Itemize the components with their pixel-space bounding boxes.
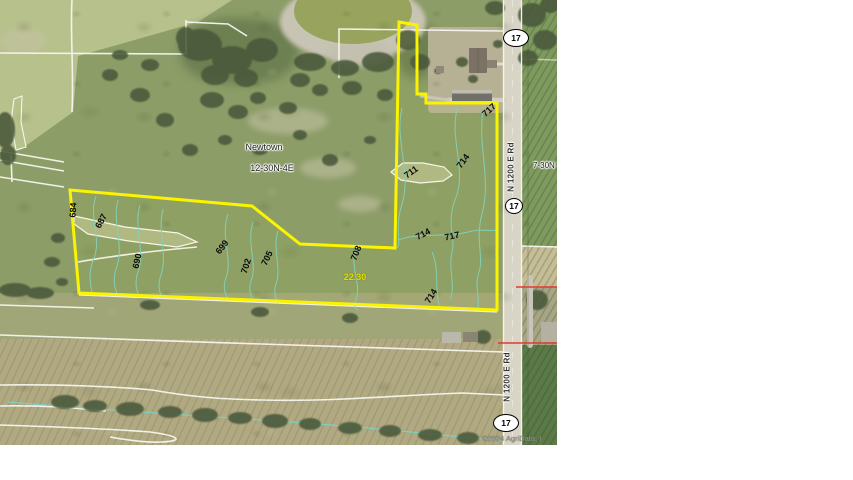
place-label: Newtown <box>245 142 282 152</box>
highway-17-shield: 17 <box>503 29 529 47</box>
section-label: 12-30N-4E <box>250 163 294 173</box>
adjacent-section-label: 7-30N <box>533 161 555 170</box>
road-name-label: N 1200 E Rd <box>507 142 516 192</box>
road-name-label: N 1200 E Rd <box>503 352 512 402</box>
parcel-acreage-label: 22.30 <box>344 272 367 282</box>
map-graphics <box>0 0 557 445</box>
report-page: Newtown 12-30N-4E 7-30N 22.30 684 687 69… <box>0 0 853 480</box>
copyright-watermark: ©2024 AgriData, I <box>482 434 541 443</box>
highway-17-shield: 17 <box>493 414 519 432</box>
contour-label: 684 <box>67 202 78 218</box>
aerial-parcel-map: Newtown 12-30N-4E 7-30N 22.30 684 687 69… <box>0 0 557 445</box>
highway-17-shield: 17 <box>505 198 523 214</box>
